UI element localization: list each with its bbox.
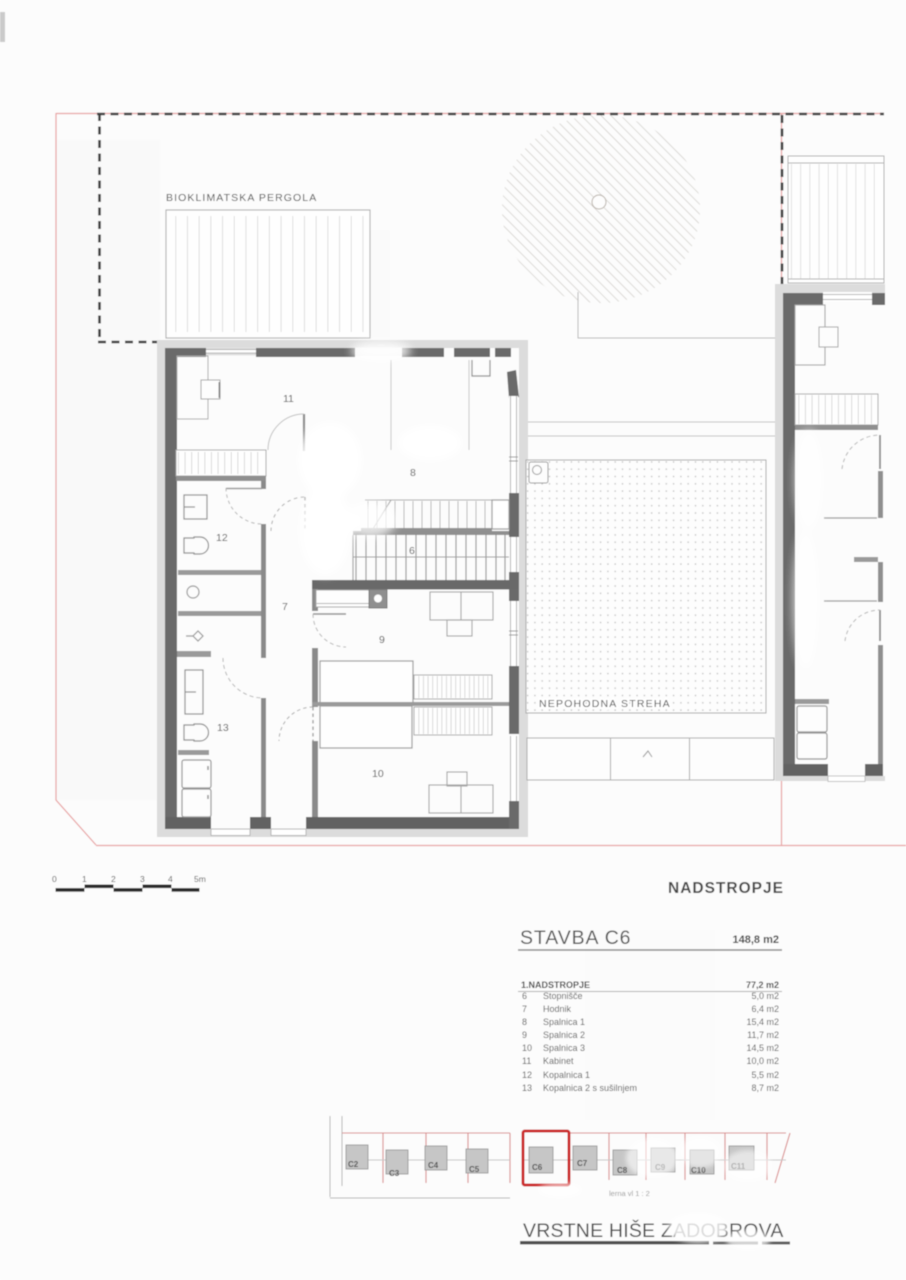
svg-text:9: 9 (522, 1030, 527, 1040)
svg-text:148,8 m2: 148,8 m2 (733, 934, 779, 946)
svg-text:C7: C7 (577, 1159, 588, 1168)
svg-text:5m: 5m (194, 874, 206, 884)
svg-text:13: 13 (522, 1083, 532, 1093)
svg-text:11: 11 (522, 1056, 531, 1066)
svg-text:5,5 m2: 5,5 m2 (751, 1070, 779, 1080)
svg-text:5,0 m2: 5,0 m2 (751, 991, 779, 1001)
svg-text:12: 12 (216, 532, 228, 544)
svg-text:4: 4 (168, 874, 173, 884)
svg-text:C6: C6 (532, 1163, 543, 1172)
svg-text:Hodnik: Hodnik (543, 1004, 572, 1014)
svg-text:Kopalnica 1: Kopalnica 1 (543, 1070, 590, 1080)
svg-text:Kopalnica 2 s sušilnjem: Kopalnica 2 s sušilnjem (543, 1083, 637, 1093)
svg-text:10,0 m2: 10,0 m2 (746, 1056, 779, 1066)
svg-text:Spalnica 3: Spalnica 3 (543, 1043, 585, 1053)
svg-text:0: 0 (52, 874, 57, 884)
svg-text:C8: C8 (617, 1166, 628, 1175)
svg-text:77,2 m2: 77,2 m2 (746, 980, 779, 990)
svg-text:12: 12 (522, 1070, 532, 1080)
svg-text:Kabinet: Kabinet (543, 1056, 574, 1066)
svg-text:NEPOHODNA STREHA: NEPOHODNA STREHA (539, 698, 671, 710)
svg-text:8: 8 (522, 1017, 527, 1027)
svg-text:C2: C2 (348, 1160, 359, 1169)
svg-text:1.NADSTROPJE: 1.NADSTROPJE (521, 980, 590, 990)
svg-text:7: 7 (522, 1004, 527, 1014)
svg-text:10: 10 (372, 768, 384, 780)
svg-text:6: 6 (409, 545, 415, 557)
svg-text:6: 6 (522, 991, 527, 1001)
svg-text:Stopnišče: Stopnišče (543, 991, 583, 1001)
svg-text:6,4 m2: 6,4 m2 (751, 1004, 779, 1014)
svg-text:2: 2 (111, 874, 116, 884)
svg-text:Spalnica 1: Spalnica 1 (543, 1017, 585, 1027)
svg-text:9: 9 (379, 634, 385, 646)
svg-text:11,7 m2: 11,7 m2 (747, 1030, 779, 1040)
svg-text:C4: C4 (428, 1161, 439, 1170)
svg-text:8,7 m2: 8,7 m2 (751, 1083, 779, 1093)
svg-text:C5: C5 (469, 1165, 480, 1174)
svg-text:C3: C3 (389, 1169, 400, 1178)
svg-text:3: 3 (140, 874, 145, 884)
svg-text:Spalnica 2: Spalnica 2 (543, 1030, 585, 1040)
svg-text:8: 8 (410, 467, 416, 479)
svg-text:7: 7 (282, 601, 288, 613)
svg-text:14,5 m2: 14,5 m2 (746, 1043, 779, 1053)
svg-text:1: 1 (82, 874, 87, 884)
svg-text:lerna vl 1 : 2: lerna vl 1 : 2 (609, 1189, 650, 1198)
svg-text:11: 11 (283, 393, 294, 405)
svg-text:13: 13 (217, 722, 229, 734)
svg-text:10: 10 (522, 1043, 532, 1053)
svg-text:15,4 m2: 15,4 m2 (746, 1017, 779, 1027)
svg-text:STAVBA C6: STAVBA C6 (520, 927, 631, 949)
svg-text:BIOKLIMATSKA PERGOLA: BIOKLIMATSKA PERGOLA (166, 192, 317, 204)
svg-text:NADSTROPJE: NADSTROPJE (668, 880, 784, 897)
